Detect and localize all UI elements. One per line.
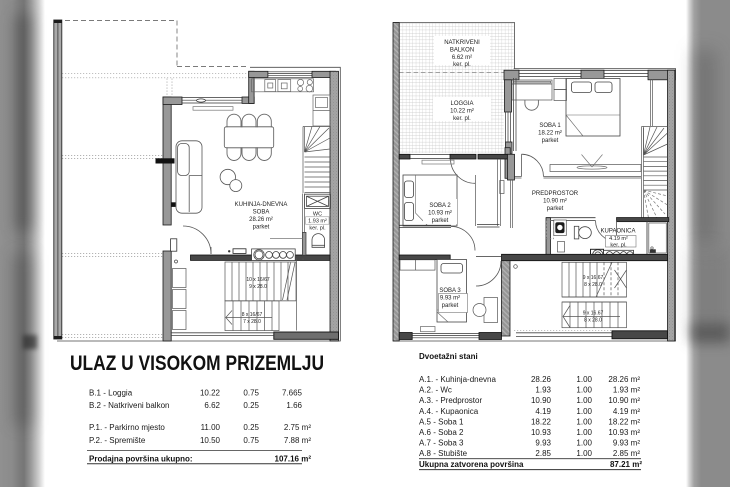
- svg-text:A.8 - Stubište: A.8 - Stubište: [419, 449, 468, 458]
- svg-text:10.90 m²: 10.90 m²: [543, 199, 567, 205]
- svg-text:SOBA 3: SOBA 3: [439, 288, 461, 294]
- svg-text:4.19 m²: 4.19 m²: [609, 236, 628, 242]
- svg-text:1.00: 1.00: [576, 386, 592, 395]
- svg-text:9.93 m²: 9.93 m²: [440, 296, 460, 302]
- svg-text:parket: parket: [442, 303, 459, 309]
- svg-text:parket: parket: [253, 225, 270, 231]
- svg-text:28.26: 28.26: [531, 375, 552, 384]
- svg-text:9 x 16.67: 9 x 16.67: [583, 311, 604, 317]
- svg-text:parket: parket: [542, 138, 559, 144]
- svg-text:ker. pl.: ker. pl.: [610, 243, 627, 249]
- svg-text:8 x 28.0: 8 x 28.0: [584, 318, 602, 324]
- svg-text:SOBA 1: SOBA 1: [539, 123, 561, 129]
- svg-text:6.62: 6.62: [204, 401, 220, 410]
- svg-text:A.1. - Kuhinja-dnevna: A.1. - Kuhinja-dnevna: [419, 375, 496, 384]
- svg-text:Prodajna površina ukupno:: Prodajna površina ukupno:: [89, 455, 193, 464]
- svg-text:1.66: 1.66: [286, 401, 302, 410]
- svg-text:Dvoetažni stani: Dvoetažni stani: [419, 352, 478, 361]
- svg-text:4.19 m²: 4.19 m²: [613, 407, 640, 416]
- svg-text:A.6 - Soba 2: A.6 - Soba 2: [419, 428, 464, 437]
- svg-text:0.75: 0.75: [243, 389, 259, 398]
- svg-text:A.4. - Kupaonica: A.4. - Kupaonica: [419, 407, 479, 416]
- svg-text:KUHINJA-DNEVNA: KUHINJA-DNEVNA: [235, 202, 288, 208]
- svg-text:10.22 m²: 10.22 m²: [450, 109, 474, 115]
- svg-text:10.93 m²: 10.93 m²: [608, 428, 640, 437]
- svg-text:1.93: 1.93: [535, 386, 551, 395]
- svg-text:7.88 m²: 7.88 m²: [284, 436, 311, 445]
- svg-text:SOBA 2: SOBA 2: [429, 203, 451, 209]
- svg-text:B.1 - Loggia: B.1 - Loggia: [89, 389, 133, 398]
- svg-text:1.93 m²: 1.93 m²: [308, 219, 327, 225]
- svg-text:9 x 28.0: 9 x 28.0: [249, 284, 267, 290]
- svg-text:A.5 - Soba 1: A.5 - Soba 1: [419, 417, 464, 426]
- svg-text:Ukupna zatvorena površina: Ukupna zatvorena površina: [419, 460, 524, 469]
- svg-text:8 x 28.0: 8 x 28.0: [584, 282, 602, 288]
- svg-text:NATKRIVENI: NATKRIVENI: [444, 40, 480, 46]
- svg-text:2.75 m²: 2.75 m²: [284, 423, 311, 432]
- svg-text:BALKON: BALKON: [450, 48, 474, 54]
- svg-text:10 x 16/67: 10 x 16/67: [246, 277, 270, 283]
- svg-text:A.7 - Soba 3: A.7 - Soba 3: [419, 439, 464, 448]
- svg-text:11.00: 11.00: [201, 423, 221, 432]
- svg-text:28.26 m²: 28.26 m²: [249, 217, 273, 223]
- svg-text:0.75: 0.75: [243, 436, 259, 445]
- svg-text:1.93 m²: 1.93 m²: [613, 386, 640, 395]
- svg-text:B.2 - Natkriveni balkon: B.2 - Natkriveni balkon: [89, 401, 169, 410]
- svg-text:ULAZ U VISOKOM PRIZEMLJU: ULAZ U VISOKOM PRIZEMLJU: [70, 352, 324, 375]
- svg-text:18.22: 18.22: [531, 417, 552, 426]
- svg-text:10.93: 10.93: [531, 428, 552, 437]
- svg-text:28.26 m²: 28.26 m²: [608, 375, 640, 384]
- svg-text:2.85 m²: 2.85 m²: [613, 449, 640, 458]
- svg-text:1.00: 1.00: [576, 407, 592, 416]
- svg-text:4.19: 4.19: [535, 407, 551, 416]
- svg-text:7.665: 7.665: [282, 389, 303, 398]
- svg-text:10.90: 10.90: [531, 396, 552, 405]
- svg-text:SOBA: SOBA: [253, 210, 270, 216]
- svg-text:P.1. - Parkirno mjesto: P.1. - Parkirno mjesto: [89, 423, 165, 432]
- svg-text:1.00: 1.00: [576, 428, 592, 437]
- svg-text:9.93 m²: 9.93 m²: [613, 439, 640, 448]
- svg-text:6.62 m²: 6.62 m²: [452, 55, 472, 61]
- svg-text:1.00: 1.00: [576, 439, 592, 448]
- svg-text:LOGGIA: LOGGIA: [450, 101, 473, 107]
- svg-text:P.2. - Spremište: P.2. - Spremište: [89, 436, 146, 445]
- svg-text:1.00: 1.00: [576, 417, 592, 426]
- svg-text:10.22: 10.22: [200, 389, 221, 398]
- svg-text:KUPAONICA: KUPAONICA: [601, 229, 636, 235]
- svg-text:18.22 m²: 18.22 m²: [608, 417, 640, 426]
- svg-text:ker. pl.: ker. pl.: [453, 62, 471, 68]
- svg-text:10.93 m²: 10.93 m²: [428, 211, 452, 217]
- svg-text:parket: parket: [432, 218, 449, 224]
- svg-text:10.90 m²: 10.90 m²: [608, 396, 640, 405]
- svg-text:0.25: 0.25: [243, 401, 259, 410]
- svg-text:107.16 m²: 107.16 m²: [275, 455, 312, 464]
- svg-text:10.50: 10.50: [200, 436, 221, 445]
- svg-text:8 x 16/67: 8 x 16/67: [242, 312, 263, 318]
- svg-text:0.25: 0.25: [243, 423, 259, 432]
- svg-text:1.00: 1.00: [576, 396, 592, 405]
- svg-text:ker. pl.: ker. pl.: [453, 116, 471, 122]
- svg-text:18.22 m²: 18.22 m²: [538, 131, 562, 137]
- svg-text:PREDPROSTOR: PREDPROSTOR: [532, 191, 579, 197]
- svg-text:1.00: 1.00: [576, 375, 592, 384]
- svg-text:9.93: 9.93: [535, 439, 551, 448]
- svg-text:1.00: 1.00: [576, 449, 592, 458]
- svg-text:A.2. - Wc: A.2. - Wc: [419, 386, 452, 395]
- svg-text:A.3. - Predprostor: A.3. - Predprostor: [419, 396, 482, 405]
- svg-text:7 x 28.0: 7 x 28.0: [243, 319, 261, 325]
- svg-text:9 x 16.67: 9 x 16.67: [583, 275, 604, 281]
- svg-text:ker. pl.: ker. pl.: [309, 225, 326, 231]
- svg-text:2.85: 2.85: [535, 449, 551, 458]
- svg-text:parket: parket: [547, 206, 564, 212]
- svg-text:87.21 m²: 87.21 m²: [610, 460, 642, 469]
